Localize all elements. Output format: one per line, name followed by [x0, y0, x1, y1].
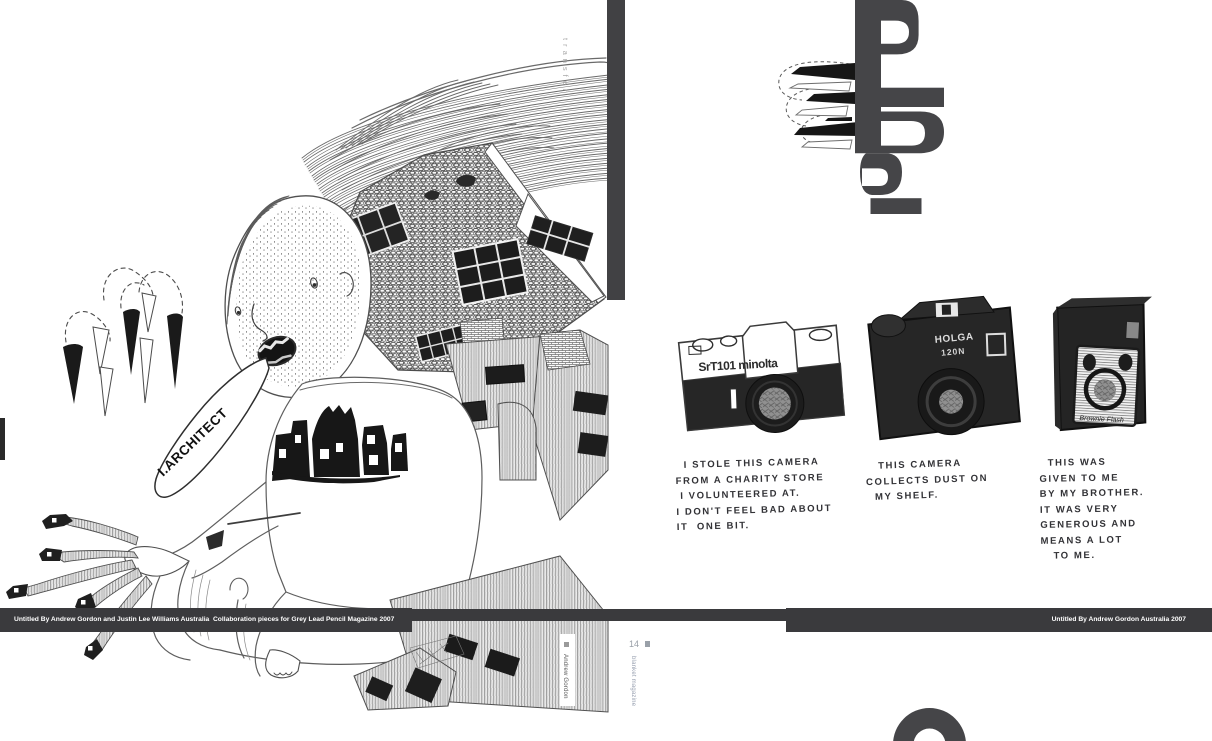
svg-text:120N: 120N: [941, 346, 966, 358]
